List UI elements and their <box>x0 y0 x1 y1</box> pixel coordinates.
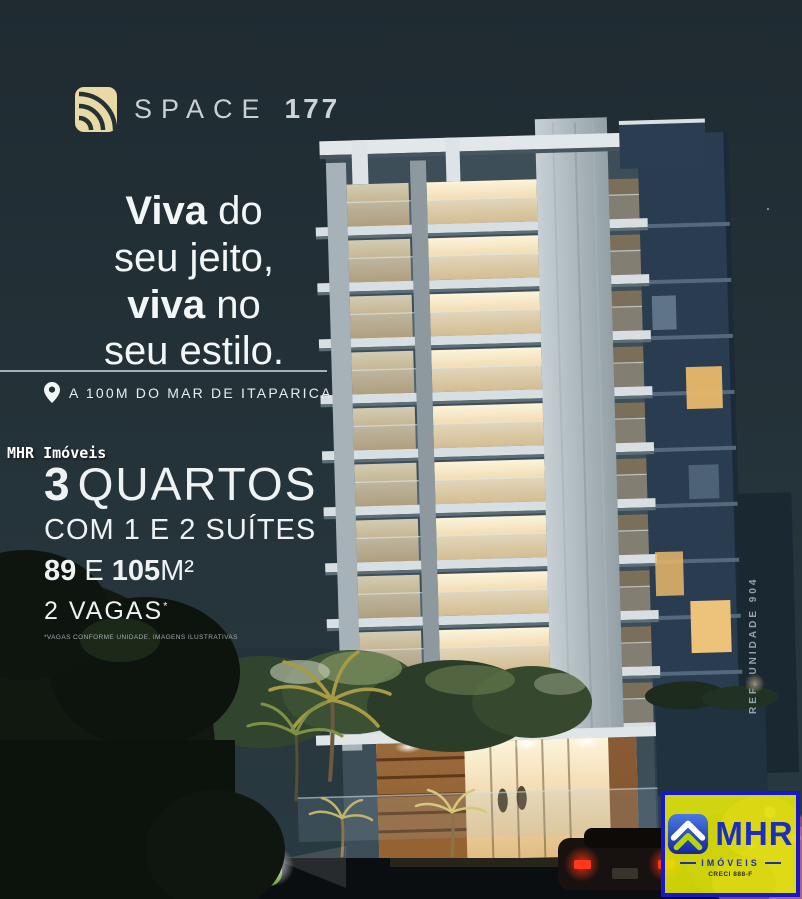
agency-subtitle: IMÓVEIS <box>701 858 760 868</box>
agency-creci: CRECI 888-F <box>708 871 753 878</box>
divider-line <box>0 370 327 372</box>
unit-reference: REF. UNIDADE 904 <box>748 562 759 714</box>
spec-parking: 2 VAGAS* <box>44 597 317 626</box>
agency-name: MHR <box>715 817 793 850</box>
mhr-roof-icon <box>667 813 709 855</box>
spec-rooms: 3QUARTOS <box>44 460 317 508</box>
headline-line-4: seu estilo. <box>26 328 362 375</box>
agency-badge: MHR IMÓVEIS CRECI 888-F <box>661 791 800 897</box>
location-text: A 100M DO MAR DE ITAPARICA <box>69 385 333 401</box>
project-logo: SPACE 177 <box>74 84 340 134</box>
subtitle-dash-left <box>680 862 696 864</box>
headline: Viva do seu jeito, viva no seu estilo. <box>26 188 362 375</box>
project-name: SPACE <box>134 94 269 125</box>
headline-line-3: viva no <box>26 282 362 329</box>
watermark-text: MHR Imóveis <box>7 444 106 462</box>
subtitle-dash-right <box>765 862 781 864</box>
headline-line-1: Viva do <box>26 188 362 235</box>
specs-block: 3QUARTOS COM 1 E 2 SUÍTES 89 E 105M² 2 V… <box>44 460 317 641</box>
spec-suites: COM 1 E 2 SUÍTES <box>44 514 317 547</box>
real-estate-ad: SPACE 177 Viva do seu jeito, viva no seu… <box>0 0 802 899</box>
project-number: 177 <box>285 93 341 125</box>
location-row: A 100M DO MAR DE ITAPARICA <box>44 382 333 403</box>
agency-subtitle-row: IMÓVEIS <box>680 858 781 868</box>
agency-badge-top: MHR <box>667 813 793 855</box>
spec-area: 89 E 105M² <box>44 555 317 588</box>
space177-logo-icon <box>74 84 120 134</box>
headline-line-2: seu jeito, <box>26 235 362 282</box>
location-pin-icon <box>44 382 60 403</box>
building-photo <box>0 0 802 899</box>
spec-fine-print: *VAGAS CONFORME UNIDADE. IMAGENS ILUSTRA… <box>44 634 317 641</box>
